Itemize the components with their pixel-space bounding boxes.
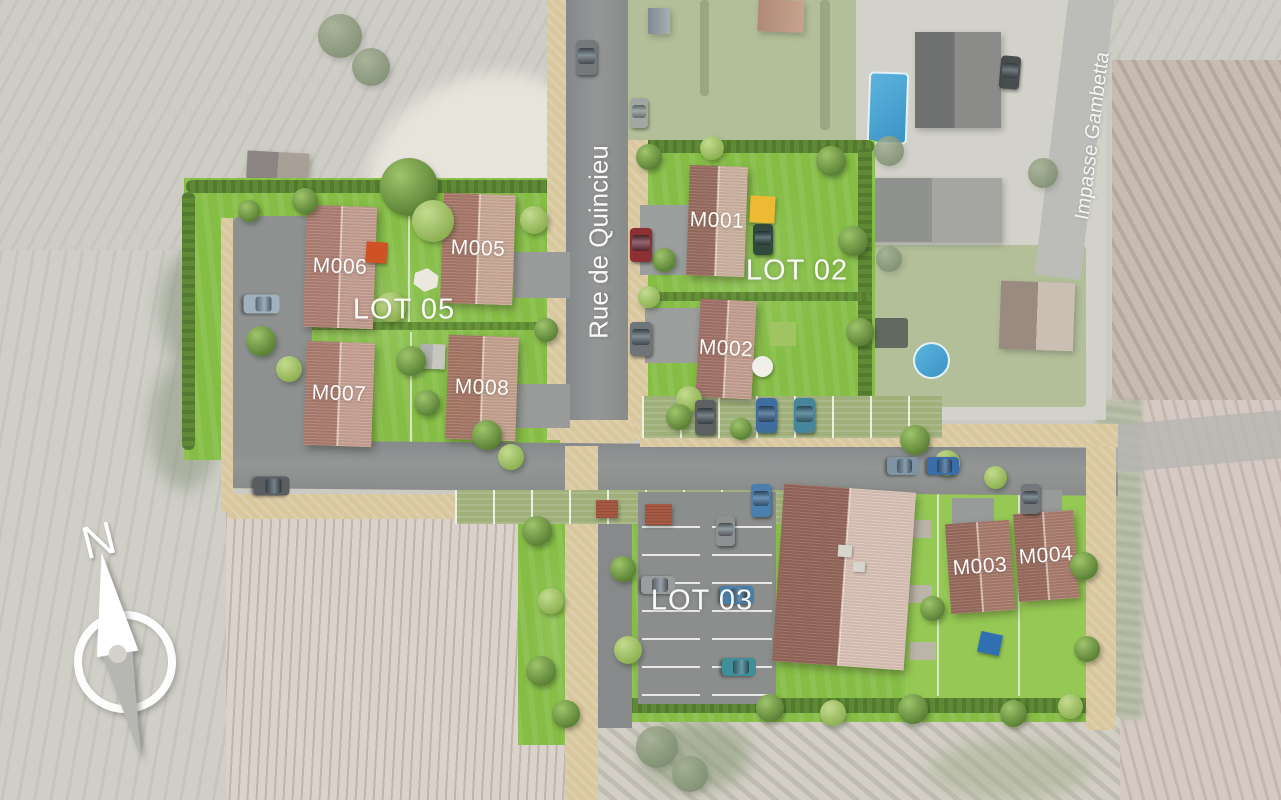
building-m001[interactable]: M001 xyxy=(686,165,748,277)
driveway xyxy=(645,308,701,363)
existing-shed-roof xyxy=(757,0,804,33)
building-m004-label: M004 xyxy=(1018,542,1074,570)
tree xyxy=(1074,636,1100,662)
tree xyxy=(820,700,846,726)
building-m003-label: M003 xyxy=(952,553,1008,581)
existing-outbuilding-roof xyxy=(999,281,1075,352)
carport xyxy=(596,500,618,518)
tree xyxy=(246,326,276,356)
building-m002-label: M002 xyxy=(698,336,754,363)
site-plan-canvas: M006 M005 M007 M008 M001 M002 M003 M004 xyxy=(0,0,1281,800)
scrub-blob xyxy=(930,740,1090,800)
hedge xyxy=(182,192,195,450)
tree xyxy=(846,318,874,346)
existing-hedge xyxy=(700,0,709,96)
driveway xyxy=(516,384,570,428)
tree xyxy=(652,248,676,272)
car xyxy=(751,484,771,517)
compass: N xyxy=(60,505,190,765)
trampoline-blue xyxy=(977,631,1003,656)
tree xyxy=(1070,552,1098,580)
tree xyxy=(610,556,636,582)
tree xyxy=(318,14,362,58)
tree xyxy=(984,466,1007,489)
tree xyxy=(666,404,692,430)
tree xyxy=(352,48,390,86)
lot03-label[interactable]: LOT 03 xyxy=(651,585,753,618)
car xyxy=(244,295,280,314)
garden-pad-green xyxy=(770,322,796,346)
tree xyxy=(1058,694,1083,719)
tree xyxy=(396,346,426,376)
crossing xyxy=(560,420,634,446)
building-m003[interactable]: M003 xyxy=(945,520,1015,614)
tree xyxy=(900,425,930,455)
lot05-label[interactable]: LOT 05 xyxy=(353,294,455,327)
car xyxy=(630,322,652,356)
tree xyxy=(292,188,318,214)
tree xyxy=(534,318,558,342)
tree xyxy=(898,694,928,724)
tree xyxy=(756,694,784,722)
tree xyxy=(412,200,454,242)
street-label-rue-de-quincieu: Rue de Quincieu xyxy=(584,145,615,339)
tree xyxy=(472,420,502,450)
terrace xyxy=(910,642,936,660)
car xyxy=(999,55,1022,90)
tree xyxy=(526,656,556,686)
tree xyxy=(552,700,580,728)
tree xyxy=(672,756,708,792)
existing-house2-roof xyxy=(862,178,1002,242)
existing-shed xyxy=(872,318,908,348)
car xyxy=(716,516,735,546)
tree xyxy=(920,596,945,621)
tree xyxy=(838,226,868,256)
footpath-east xyxy=(1086,446,1116,730)
tree xyxy=(538,588,564,614)
car xyxy=(254,477,290,496)
tree xyxy=(1000,700,1027,727)
existing-hedge xyxy=(820,0,830,130)
hedge xyxy=(628,292,872,301)
swimming-pool xyxy=(867,71,909,144)
round-pool xyxy=(913,342,950,379)
car xyxy=(630,98,648,128)
driveway xyxy=(514,252,570,298)
building-m002[interactable]: M002 xyxy=(695,299,756,400)
play-equipment-yellow xyxy=(749,195,775,223)
tree xyxy=(636,726,678,768)
tree xyxy=(522,516,552,546)
hedge xyxy=(858,148,872,404)
building-m004[interactable]: M004 xyxy=(1013,510,1079,602)
building-lot03-main[interactable] xyxy=(772,484,916,671)
car xyxy=(630,228,652,262)
car xyxy=(722,658,756,676)
field-top-right-corner xyxy=(1100,0,1281,60)
road-main-horizontal xyxy=(228,440,1118,496)
car xyxy=(794,398,815,433)
tree xyxy=(1028,158,1058,188)
parasol xyxy=(752,356,773,377)
tree xyxy=(636,144,662,170)
tree xyxy=(520,206,548,234)
building-m007[interactable]: M007 xyxy=(303,341,375,447)
tree xyxy=(276,356,302,382)
tree xyxy=(638,286,660,308)
existing-greenhouse xyxy=(648,8,670,34)
existing-house-roof xyxy=(915,32,1001,128)
sidewalk xyxy=(221,218,233,512)
tree xyxy=(414,390,440,416)
car xyxy=(1021,484,1040,514)
lane-south xyxy=(598,492,632,728)
tree xyxy=(816,146,846,176)
fence xyxy=(937,482,939,696)
rooftop-vent xyxy=(838,545,853,558)
hedge xyxy=(186,180,564,193)
building-m008-label: M008 xyxy=(454,375,509,401)
field-right-upper xyxy=(1112,52,1281,412)
carport xyxy=(645,504,672,525)
car xyxy=(756,398,777,433)
building-m006-label: M006 xyxy=(312,254,367,280)
car xyxy=(695,400,716,435)
rooftop-vent xyxy=(853,562,866,573)
building-m007-label: M007 xyxy=(311,381,366,407)
car xyxy=(753,224,773,255)
car xyxy=(927,457,959,475)
tree xyxy=(498,444,524,470)
building-m001-label: M001 xyxy=(689,208,744,234)
building-m005[interactable]: M005 xyxy=(440,193,516,305)
tree xyxy=(614,636,642,664)
tree xyxy=(700,136,724,160)
sidewalk xyxy=(547,0,567,440)
tree xyxy=(874,136,904,166)
car xyxy=(887,457,919,475)
play-equipment-orange xyxy=(365,241,387,263)
lot02-label[interactable]: LOT 02 xyxy=(746,255,848,288)
car xyxy=(576,40,597,75)
tree xyxy=(876,246,902,272)
tree xyxy=(238,200,260,222)
building-m005-label: M005 xyxy=(450,236,505,262)
tree xyxy=(730,418,752,440)
